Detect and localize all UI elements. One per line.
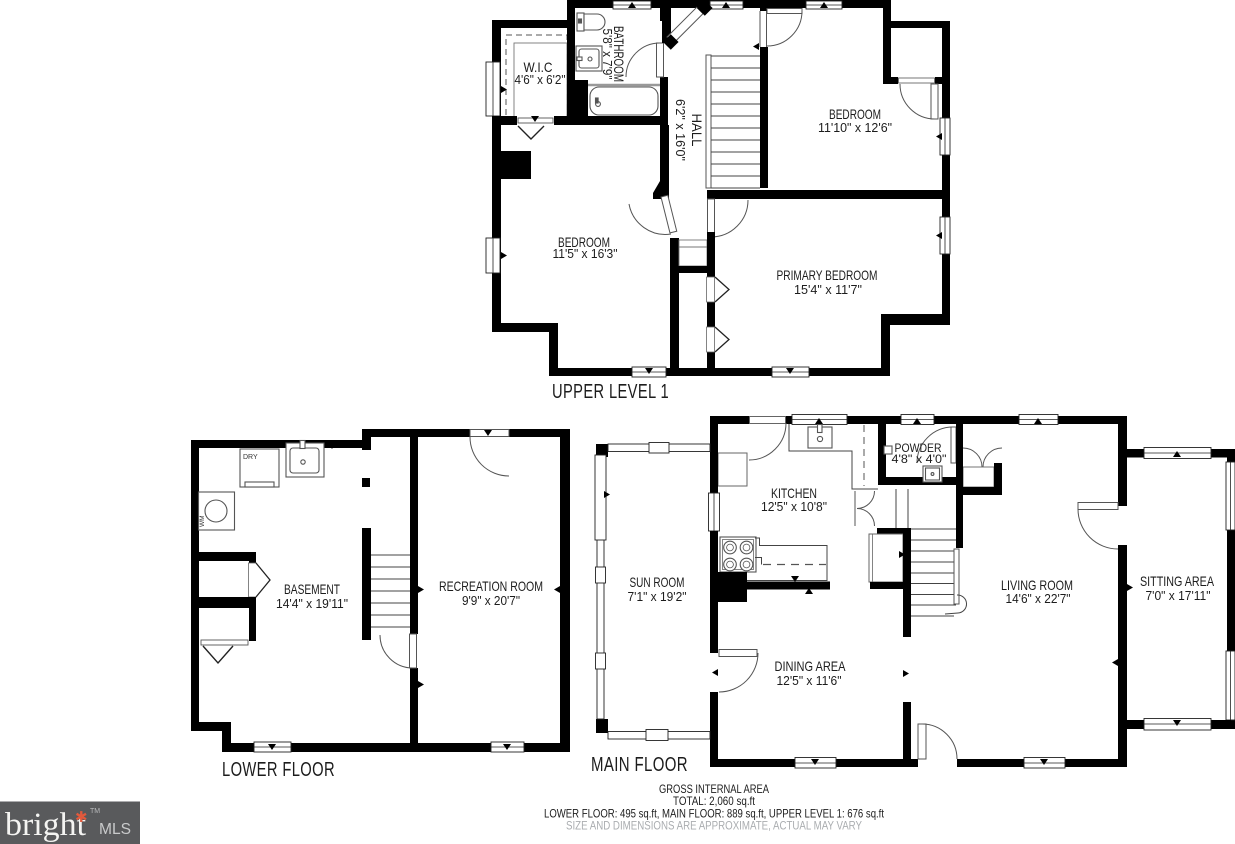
svg-text:DINING AREA: DINING AREA xyxy=(775,658,847,674)
svg-text:12'5" x 11'6": 12'5" x 11'6" xyxy=(777,673,842,688)
svg-text:7'1" x 19'2": 7'1" x 19'2" xyxy=(628,589,687,604)
svg-text:bright: bright xyxy=(5,807,86,843)
svg-text:11'10" x 12'6": 11'10" x 12'6" xyxy=(818,120,892,135)
svg-text:11'5" x 16'3": 11'5" x 16'3" xyxy=(553,246,618,261)
svg-text:BASEMENT: BASEMENT xyxy=(284,581,340,597)
svg-text:4'6" x 6'2": 4'6" x 6'2" xyxy=(515,72,566,87)
svg-text:SITTING AREA: SITTING AREA xyxy=(1140,573,1215,589)
svg-text:7'0" x 17'11": 7'0" x 17'11" xyxy=(1146,588,1211,603)
svg-text:LOWER FLOOR: LOWER FLOOR xyxy=(222,759,335,781)
svg-text:UPPER LEVEL 1: UPPER LEVEL 1 xyxy=(552,381,669,403)
svg-text:14'4" x 19'11": 14'4" x 19'11" xyxy=(276,596,348,611)
svg-text:WM: WM xyxy=(199,515,206,527)
svg-text:MLS: MLS xyxy=(99,821,131,838)
svg-text:9'9" x 20'7": 9'9" x 20'7" xyxy=(462,593,520,608)
svg-text:15'4" x 11'7": 15'4" x 11'7" xyxy=(794,282,862,297)
svg-text:RECREATION ROOM: RECREATION ROOM xyxy=(439,578,543,594)
svg-text:SIZE AND DIMENSIONS ARE APPROX: SIZE AND DIMENSIONS ARE APPROXIMATE, ACT… xyxy=(566,819,862,833)
svg-text:✱: ✱ xyxy=(75,809,88,826)
svg-text:SUN ROOM: SUN ROOM xyxy=(630,574,685,590)
svg-text:HALL: HALL xyxy=(689,114,705,147)
svg-text:MAIN FLOOR: MAIN FLOOR xyxy=(591,754,688,776)
svg-text:PRIMARY BEDROOM: PRIMARY BEDROOM xyxy=(777,267,878,283)
svg-text:14'6" x 22'7": 14'6" x 22'7" xyxy=(1006,591,1071,606)
svg-text:5'8" x 7'9": 5'8" x 7'9" xyxy=(600,29,615,80)
svg-text:6'2" x 16'0": 6'2" x 16'0" xyxy=(673,99,688,161)
svg-text:4'8" x 4'0": 4'8" x 4'0" xyxy=(892,454,947,466)
svg-text:TM: TM xyxy=(90,808,100,815)
svg-text:POWDER: POWDER xyxy=(895,441,942,455)
svg-text:12'5" x 10'8": 12'5" x 10'8" xyxy=(761,499,827,514)
svg-text:DRY: DRY xyxy=(243,454,258,461)
